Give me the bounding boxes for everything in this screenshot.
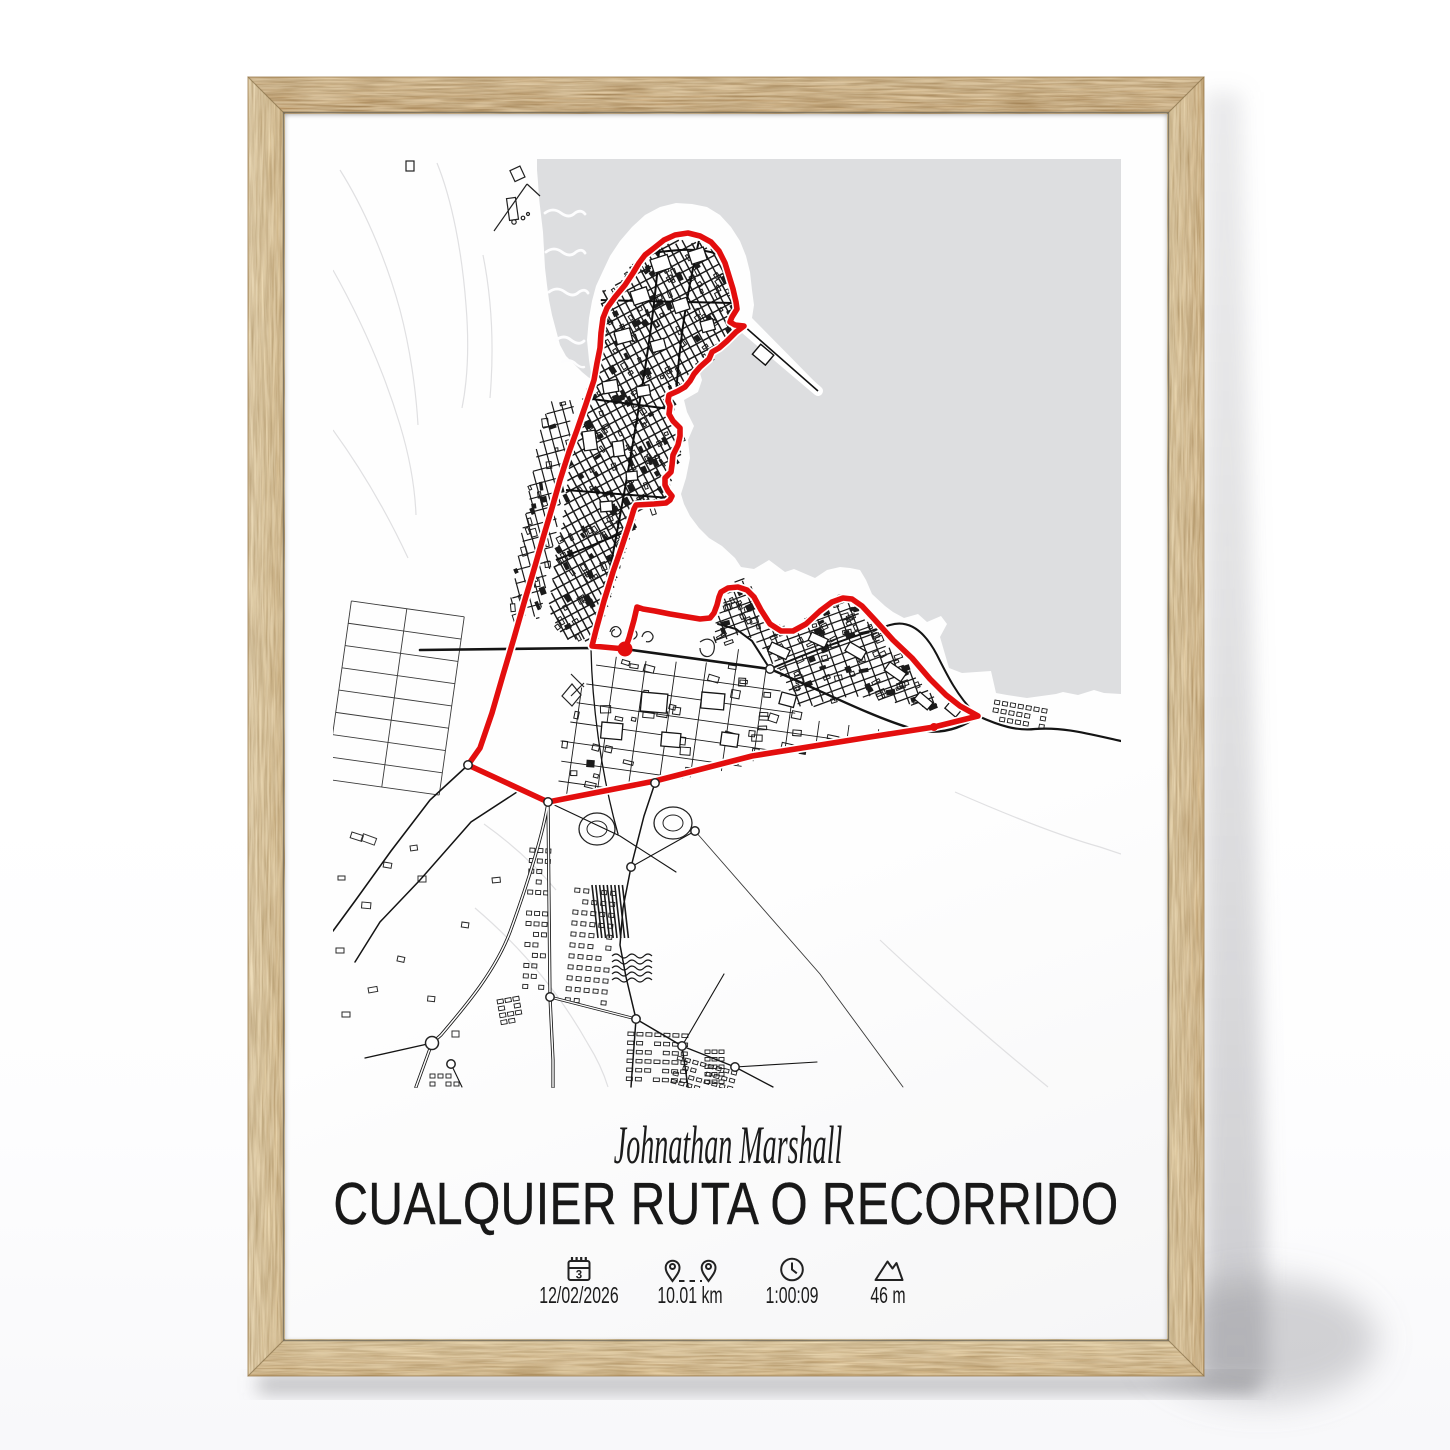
svg-text:3: 3 [576,1270,582,1282]
